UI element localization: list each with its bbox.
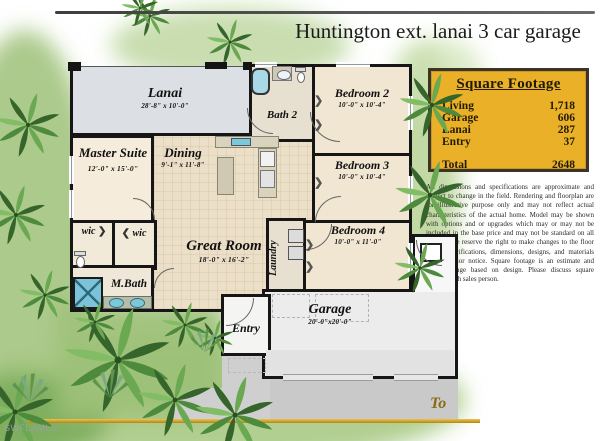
room-label-bedroom2: Bedroom 2 10'-0" x 10'-4" <box>316 86 408 109</box>
window <box>408 176 413 208</box>
window <box>408 243 413 273</box>
top-rule-line <box>55 11 595 14</box>
room-label-mbath: M.Bath <box>100 278 158 290</box>
kitchen-sink <box>231 138 251 146</box>
toilet <box>76 256 85 268</box>
stove <box>260 151 275 167</box>
square-footage-title: Square Footage <box>439 76 578 93</box>
wall-post <box>68 62 81 71</box>
kitchen-island <box>217 157 234 195</box>
entry-step-outline <box>228 358 266 373</box>
window <box>69 156 74 184</box>
table-row: Entry 37 <box>431 136 586 148</box>
window <box>69 190 74 218</box>
signature-watermark: To <box>430 395 446 413</box>
toilet <box>297 72 305 83</box>
room-label-garage: Garage 20'-0"x20'-0" <box>268 302 392 326</box>
window <box>408 96 413 130</box>
room-label-bedroom3: Bedroom 3 10'-0" x 10'-4" <box>316 158 408 181</box>
square-footage-table: Square Footage Living 1,718 Garage 606 L… <box>428 68 589 172</box>
bath2-sink <box>272 66 292 81</box>
dryer <box>288 246 304 260</box>
mls-watermark: SWFLAMLS <box>4 423 58 433</box>
table-total-row: Total 2648 <box>431 159 586 171</box>
room-label-wic1: wic ❯ <box>76 226 112 237</box>
room-label-dining: Dining 9'-1" x 11'-8" <box>152 145 214 169</box>
table-row: Garage 606 <box>431 112 586 124</box>
room-label-wic2: ❮ wic <box>115 228 153 239</box>
bathtub <box>251 68 270 95</box>
garage-apron <box>266 350 454 376</box>
closet-door-icon: ❯ <box>314 118 323 131</box>
gold-divider-line <box>28 419 480 423</box>
bifold-door-icon: ❮ <box>122 228 130 239</box>
room-label-lanai: Lanai 28'-8" x 10'-0" <box>118 86 212 110</box>
vanity-sink <box>109 298 124 308</box>
room-bedroom2 <box>312 64 412 156</box>
room-label-bedroom4: Bedroom 4 10'-0" x 11'-0" <box>312 223 404 246</box>
room-label-great-room: Great Room 18'-0" x 16'-2" <box>165 238 283 264</box>
table-row: Living 1,718 <box>431 100 586 112</box>
closet-door-icon: ❯ <box>305 260 314 273</box>
garage-door <box>394 374 438 381</box>
wall-post <box>205 62 227 69</box>
window <box>336 62 370 67</box>
bifold-door-icon: ❯ <box>98 226 106 237</box>
table-row: Lanai 287 <box>431 124 586 136</box>
refrigerator <box>260 170 275 188</box>
garage-door <box>283 374 373 381</box>
page-title: Huntington ext. lanai 3 car garage <box>283 19 593 44</box>
vanity-sink <box>130 298 145 308</box>
shower <box>73 277 103 309</box>
washer <box>288 229 304 243</box>
room-label-master: Master Suite 12'-0" x 15'-0" <box>78 146 148 174</box>
room-label-entry: Entry <box>222 321 270 336</box>
floorplan-page: All dimensions and specifications are ap… <box>0 0 600 441</box>
wall-post <box>243 62 252 70</box>
room-label-bath2: Bath 2 <box>251 109 313 121</box>
room-label-laundry: Laundry <box>268 224 284 292</box>
